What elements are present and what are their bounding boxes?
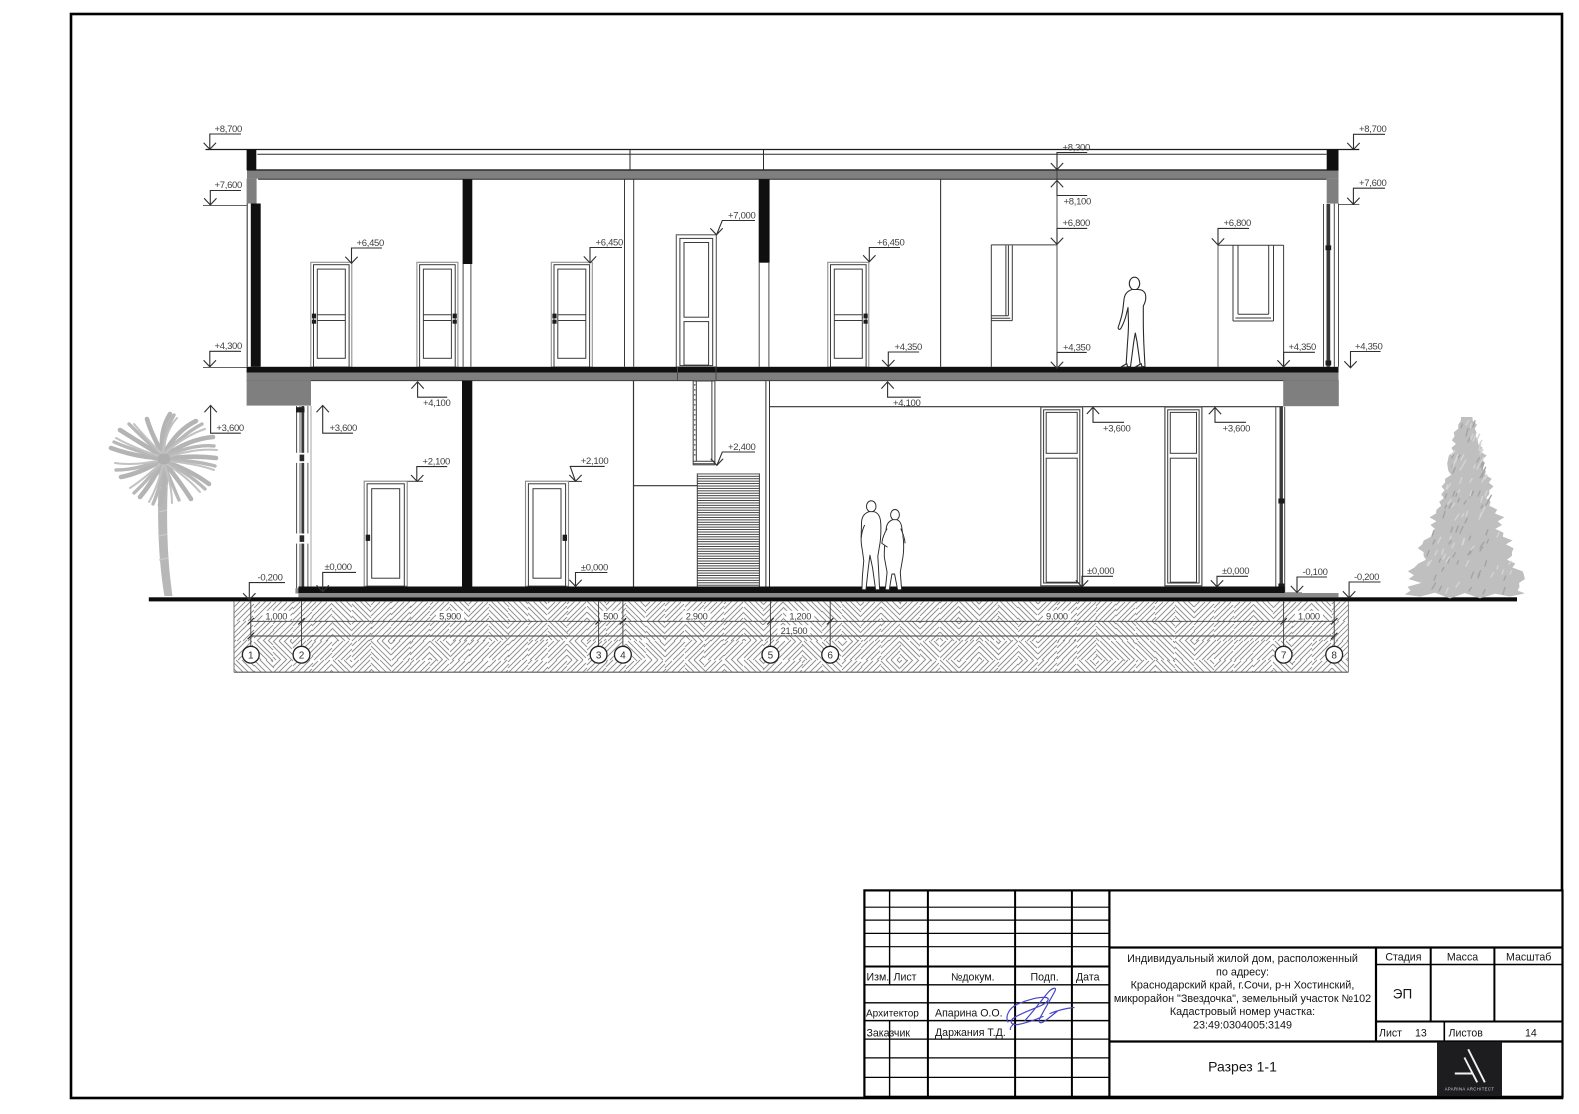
svg-text:7: 7 bbox=[1281, 650, 1287, 661]
svg-text:±0,000: ±0,000 bbox=[325, 562, 352, 573]
svg-text:+4,100: +4,100 bbox=[893, 398, 921, 409]
svg-text:+8,700: +8,700 bbox=[215, 124, 243, 135]
svg-text:APARINA ARCHITECT: APARINA ARCHITECT bbox=[1445, 1086, 1495, 1091]
svg-text:ЭП: ЭП bbox=[1393, 987, 1412, 1002]
svg-text:Кадастровый номер участка:: Кадастровый номер участка: bbox=[1170, 1006, 1315, 1018]
svg-text:+6,450: +6,450 bbox=[596, 237, 624, 248]
svg-text:+6,450: +6,450 bbox=[877, 237, 905, 248]
svg-text:-0,200: -0,200 bbox=[1354, 572, 1379, 583]
svg-text:14: 14 bbox=[1525, 1028, 1537, 1040]
svg-text:+7,600: +7,600 bbox=[1359, 178, 1387, 189]
svg-text:Даржания Т.Д.: Даржания Т.Д. bbox=[935, 1027, 1006, 1039]
svg-text:+2,100: +2,100 bbox=[423, 456, 451, 467]
svg-text:№докум.: №докум. bbox=[951, 972, 995, 984]
svg-text:5,900: 5,900 bbox=[439, 611, 461, 621]
svg-text:+4,350: +4,350 bbox=[1063, 343, 1091, 354]
svg-text:Разрез 1-1: Разрез 1-1 bbox=[1208, 1059, 1277, 1075]
svg-text:микрорайон "Звездочка", земель: микрорайон "Звездочка", земельный участо… bbox=[1114, 993, 1371, 1005]
svg-text:+8,300: +8,300 bbox=[1063, 143, 1091, 154]
svg-text:-0,100: -0,100 bbox=[1303, 567, 1328, 578]
svg-text:±0,000: ±0,000 bbox=[581, 562, 608, 573]
svg-text:+3,600: +3,600 bbox=[216, 423, 244, 434]
svg-text:1: 1 bbox=[248, 650, 254, 661]
svg-text:±0,000: ±0,000 bbox=[1087, 566, 1114, 577]
svg-text:4: 4 bbox=[620, 650, 626, 661]
svg-text:21,500: 21,500 bbox=[781, 626, 808, 636]
svg-text:по адресу:: по адресу: bbox=[1216, 966, 1269, 978]
svg-text:+4,100: +4,100 bbox=[423, 398, 451, 409]
svg-text:+6,450: +6,450 bbox=[357, 238, 385, 249]
svg-text:Архитектор: Архитектор bbox=[866, 1009, 919, 1020]
svg-text:1,000: 1,000 bbox=[265, 611, 287, 621]
svg-text:Лист: Лист bbox=[1379, 1028, 1402, 1040]
svg-text:Масштаб: Масштаб bbox=[1506, 952, 1551, 964]
svg-text:+3,600: +3,600 bbox=[330, 423, 358, 434]
svg-text:+3,600: +3,600 bbox=[1223, 423, 1251, 434]
svg-text:Заказчик: Заказчик bbox=[867, 1027, 911, 1039]
svg-text:Масса: Масса bbox=[1447, 952, 1478, 964]
svg-text:23:49:0304005:3149: 23:49:0304005:3149 bbox=[1193, 1020, 1292, 1032]
svg-text:+4,350: +4,350 bbox=[895, 342, 923, 353]
svg-text:1,000: 1,000 bbox=[1298, 611, 1320, 621]
svg-text:Подп.: Подп. bbox=[1031, 972, 1059, 984]
svg-text:+2,100: +2,100 bbox=[581, 456, 609, 467]
svg-text:+8,700: +8,700 bbox=[1359, 124, 1387, 135]
svg-text:+8,100: +8,100 bbox=[1064, 196, 1092, 207]
svg-text:5: 5 bbox=[768, 650, 774, 661]
svg-text:+4,350: +4,350 bbox=[1289, 342, 1317, 353]
svg-text:2,900: 2,900 bbox=[686, 611, 708, 621]
svg-text:8: 8 bbox=[1331, 650, 1337, 661]
svg-text:+4,350: +4,350 bbox=[1355, 341, 1383, 352]
svg-text:13: 13 bbox=[1415, 1028, 1427, 1040]
svg-text:Краснодарский край, г.Сочи, р-: Краснодарский край, г.Сочи, р-н Хостинск… bbox=[1131, 980, 1355, 992]
svg-text:+7,600: +7,600 bbox=[215, 180, 243, 191]
svg-text:9,000: 9,000 bbox=[1046, 611, 1068, 621]
svg-text:3: 3 bbox=[596, 650, 602, 661]
svg-text:+4,300: +4,300 bbox=[215, 341, 243, 352]
svg-text:2: 2 bbox=[299, 650, 305, 661]
svg-text:1,200: 1,200 bbox=[789, 611, 811, 621]
svg-text:+3,600: +3,600 bbox=[1103, 423, 1131, 434]
svg-text:+6,800: +6,800 bbox=[1063, 218, 1091, 229]
svg-text:+6,800: +6,800 bbox=[1224, 218, 1252, 229]
svg-text:500: 500 bbox=[603, 611, 618, 621]
svg-text:+7,000: +7,000 bbox=[728, 210, 756, 221]
svg-text:-0,200: -0,200 bbox=[258, 572, 283, 583]
svg-text:Стадия: Стадия bbox=[1385, 952, 1421, 964]
svg-text:Индивидуальный жилой дом, расп: Индивидуальный жилой дом, расположенный bbox=[1127, 953, 1358, 965]
svg-text:Листов: Листов bbox=[1449, 1028, 1484, 1040]
svg-text:6: 6 bbox=[827, 650, 833, 661]
svg-text:Изм.: Изм. bbox=[867, 972, 890, 984]
svg-text:±0,000: ±0,000 bbox=[1222, 566, 1249, 577]
svg-text:+2,400: +2,400 bbox=[728, 442, 756, 453]
svg-text:Лист: Лист bbox=[894, 972, 917, 984]
svg-text:Дата: Дата bbox=[1076, 972, 1100, 984]
svg-text:Апарина О.О.: Апарина О.О. bbox=[935, 1007, 1003, 1019]
